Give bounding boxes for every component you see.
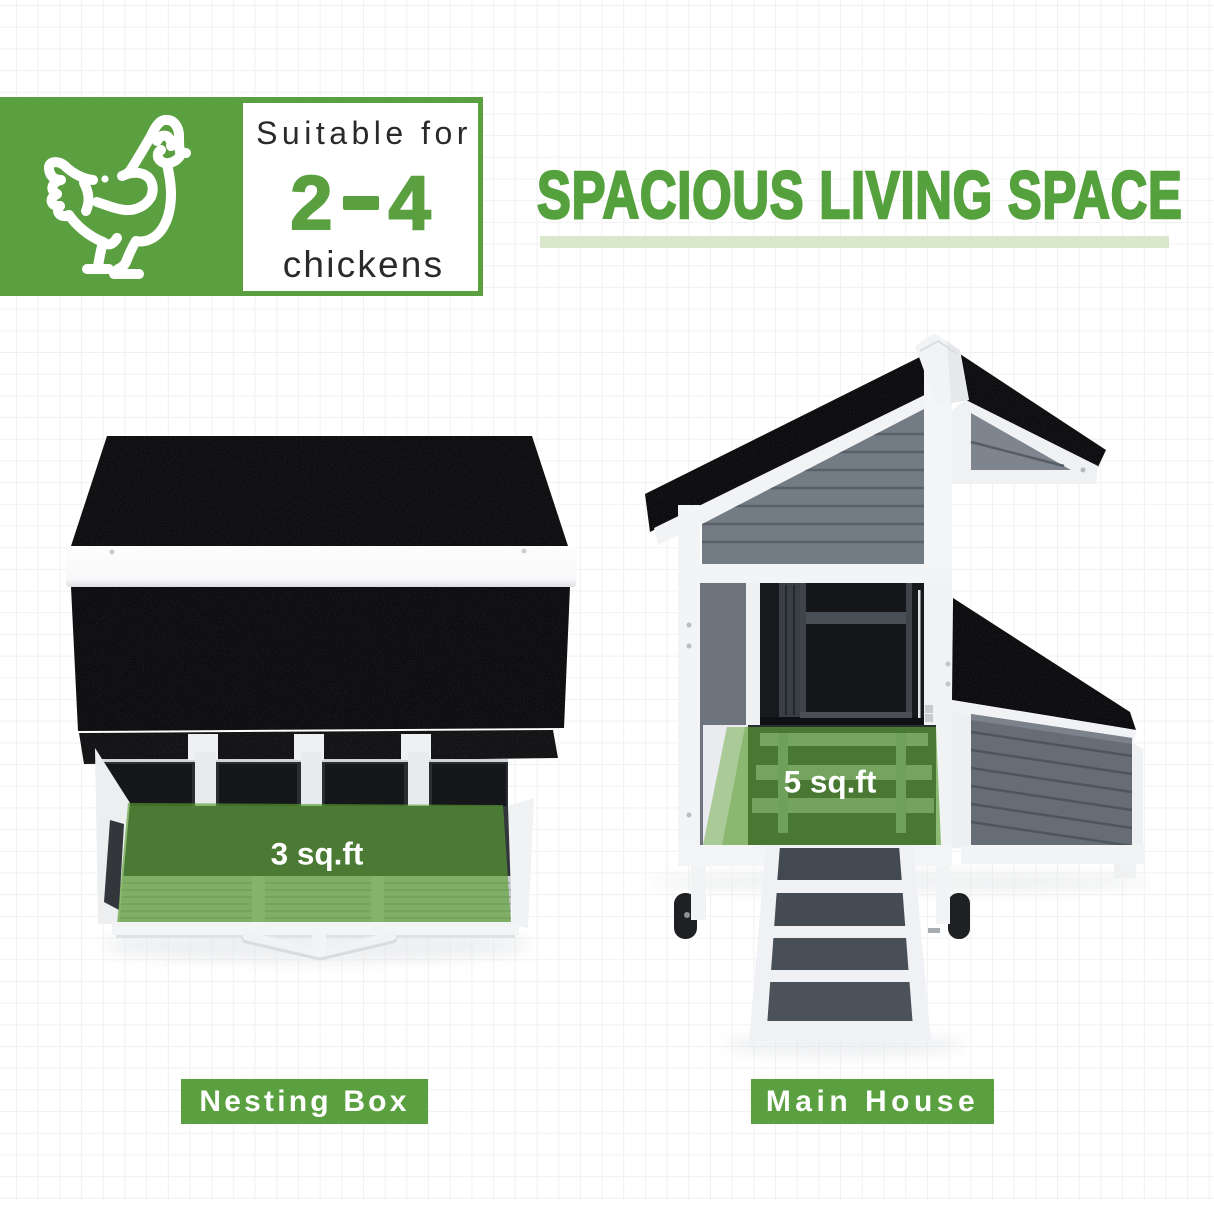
svg-text:5 sq.ft: 5 sq.ft <box>784 764 877 800</box>
svg-text:3 sq.ft: 3 sq.ft <box>271 836 364 872</box>
